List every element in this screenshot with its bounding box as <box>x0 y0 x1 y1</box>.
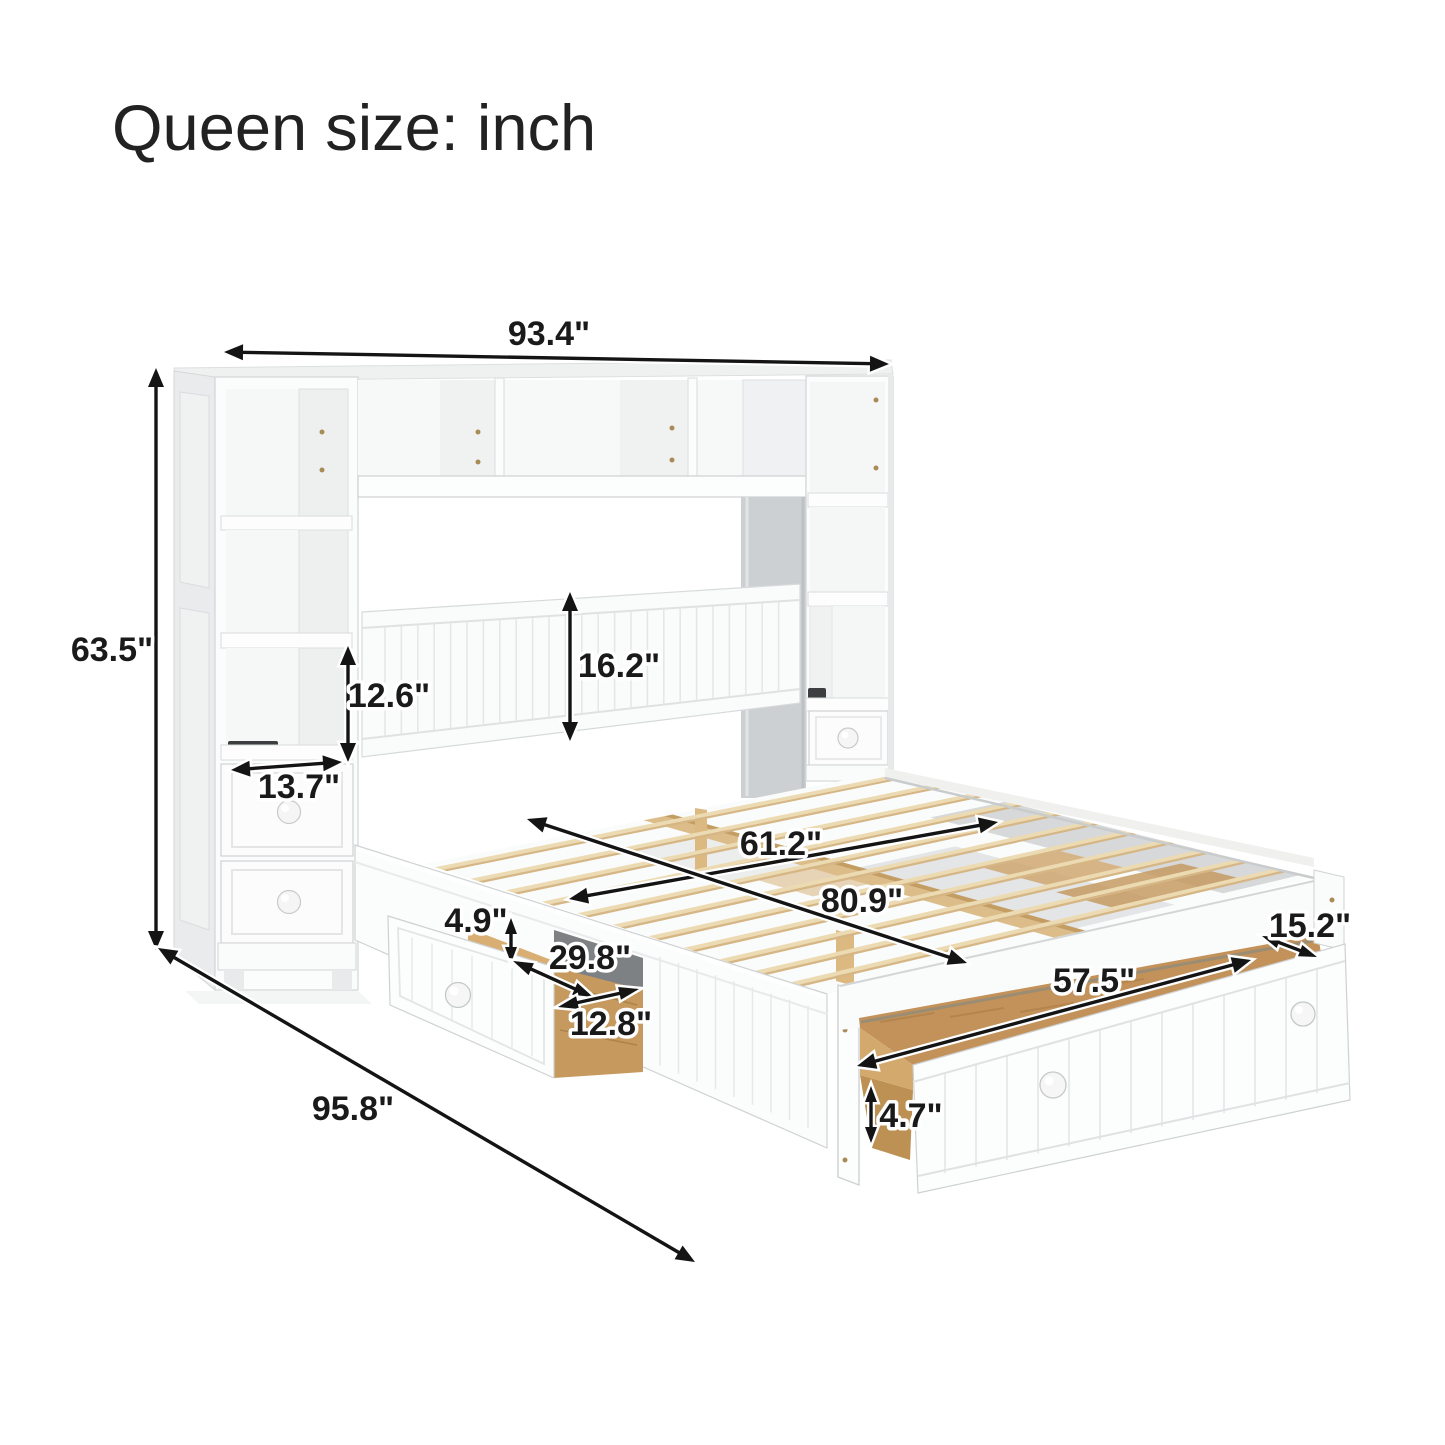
svg-text:63.5": 63.5" <box>71 631 153 669</box>
svg-text:4.7": 4.7" <box>879 1097 942 1135</box>
svg-text:15.2": 15.2" <box>1269 907 1351 945</box>
svg-text:57.5": 57.5" <box>1053 962 1135 1000</box>
svg-text:29.8": 29.8" <box>549 939 631 977</box>
svg-text:12.8": 12.8" <box>570 1005 652 1043</box>
svg-text:4.9": 4.9" <box>444 902 507 940</box>
svg-text:61.2": 61.2" <box>740 825 822 863</box>
svg-text:95.8": 95.8" <box>312 1090 394 1128</box>
svg-text:13.7": 13.7" <box>258 768 340 806</box>
svg-text:80.9": 80.9" <box>821 882 903 920</box>
svg-text:Queen size: inch: Queen size: inch <box>112 91 596 164</box>
svg-text:93.4": 93.4" <box>508 315 590 353</box>
svg-text:16.2": 16.2" <box>578 647 660 685</box>
svg-text:12.6": 12.6" <box>348 677 430 715</box>
